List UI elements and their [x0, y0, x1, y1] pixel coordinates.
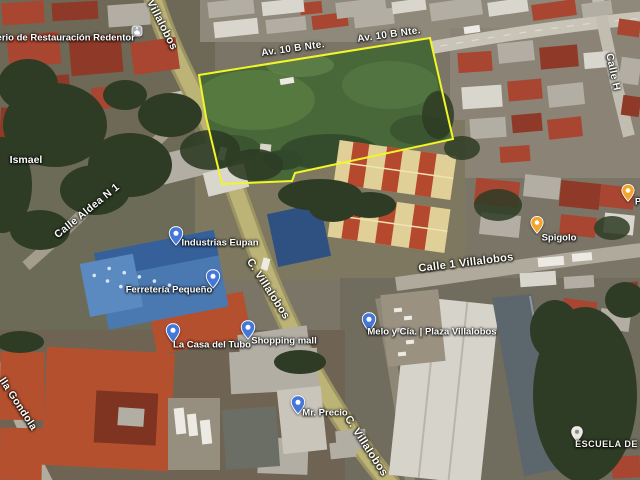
- satellite-map[interactable]: VillalobosAv. 10 B Nte.Av. 10 B Nte.Call…: [0, 0, 640, 480]
- ministerio-label[interactable]: Ministerio de Restauración Redentor: [0, 33, 135, 44]
- street-label-calle-h: Calle H: [603, 52, 623, 91]
- shopping-mall-label[interactable]: Shopping mall: [251, 336, 316, 347]
- la-casa-del-tubo-label[interactable]: La Casa del Tubo: [173, 340, 251, 351]
- street-label-av-10-b-nte-west: Av. 10 B Nte.: [261, 39, 326, 59]
- melo-y-cia-label[interactable]: Melo y Cía. | Plaza Villalobos: [367, 327, 496, 338]
- poi-right-edge-pin[interactable]: [621, 184, 635, 202]
- street-label-villalobos-top: Villalobos: [144, 0, 180, 52]
- map-labels-layer: VillalobosAv. 10 B Nte.Av. 10 B Nte.Call…: [0, 0, 640, 480]
- street-label-calle-1-villalobos: Calle 1 Villalobos: [418, 251, 514, 275]
- escuela-de-m-label[interactable]: ESCUELA DE M: [575, 439, 640, 449]
- industrias-eupan-label[interactable]: Industrias Eupan: [181, 238, 258, 249]
- street-label-c-villalobos-south: C. Villalobos: [342, 413, 390, 478]
- poi-right-edge-label[interactable]: P: [635, 197, 640, 208]
- street-label-villa-gondola: lla Gondola: [0, 375, 40, 432]
- mr-precio-label[interactable]: Mr. Precio: [302, 408, 347, 419]
- street-label-av-10-b-nte-east: Av. 10 B Nte.: [357, 25, 422, 45]
- spigolo-pin[interactable]: [530, 216, 544, 234]
- ismael-label[interactable]: Ismael: [10, 154, 43, 166]
- street-label-c-villalobos-mid: C. Villalobos: [244, 256, 292, 321]
- spigolo-label[interactable]: Spigolo: [542, 233, 577, 244]
- ferreteria-pequeno-label[interactable]: Ferretería Pequeño: [126, 285, 213, 296]
- street-label-calle-aldea-n-1: Calle Aldea N 1: [52, 181, 122, 241]
